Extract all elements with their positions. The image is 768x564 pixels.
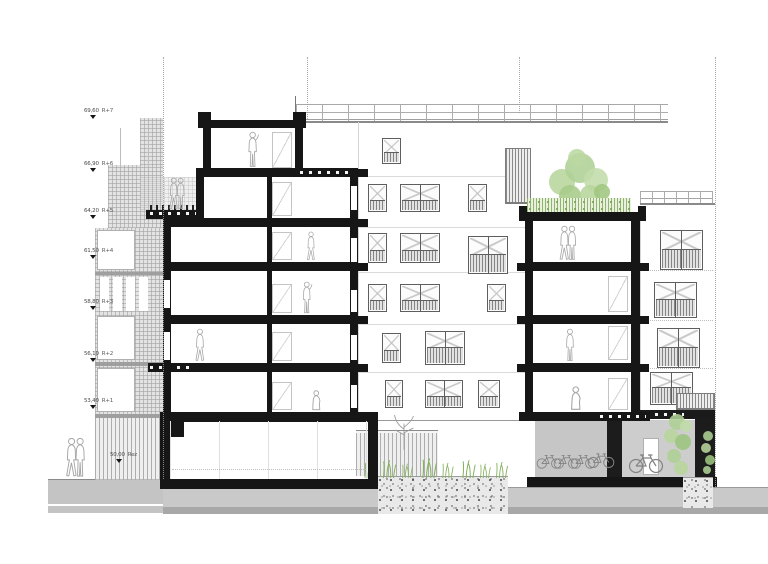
floor-slab [533,315,631,324]
level-triangle-icon [90,215,96,219]
level-floor: R+2 [102,351,113,357]
window-double [660,230,703,270]
grass-tuft [494,460,509,478]
floor-line [358,324,525,325]
ground-edge-line-right [508,487,768,488]
bare-tree [388,412,420,450]
left-building-loggia-slot [126,277,135,311]
floor-dotted-line [640,368,713,370]
window-guardrail [384,152,399,162]
roof-slab [519,212,646,221]
grass-tuft [478,462,492,478]
level-marker-rez: 50,00Rez [110,452,137,463]
floor-line [358,372,525,373]
left-building-step [140,118,163,165]
left-building-loggia-slot [139,277,148,311]
roof-guardrail [296,104,668,122]
human-figure [192,328,208,363]
balcony-slab-nub [640,263,649,271]
left-building-ground-cladding [95,418,163,479]
cut-wall [163,227,171,412]
ground-band-right [508,487,768,507]
facade-ground-line [358,420,536,421]
floor-slab [163,218,358,227]
floor-line [358,227,525,228]
balcony-slab-nub [517,364,525,372]
window [468,184,487,212]
balcony-slab-nub [356,316,368,324]
window-guardrail [659,347,698,366]
level-floor: R+4 [102,248,113,254]
balcony-slab-nub [517,316,525,324]
floor-dotted-line [640,270,713,272]
window-double [425,380,463,408]
roofline [296,121,668,123]
architectural-section-drawing: 69,60R+7 66,90R+6 64,20R+5 61,50R+4 58,8… [0,0,768,564]
level-triangle-icon [90,168,96,172]
balcony-slab-nub [640,316,649,324]
window-double [400,233,440,263]
level-marker-r1: 53,40R+1 [84,398,113,409]
window [487,284,506,312]
interior-door [272,382,292,410]
interior-door [608,378,628,410]
slab-dash-marks [150,366,194,369]
human-figure-pair [556,225,581,262]
bicycle [587,450,615,469]
window-double [400,284,440,312]
level-marker-r5: 64,20R+5 [84,208,113,219]
cut-wall [525,221,533,420]
parapet-cap [198,112,211,128]
grass-tuft [420,456,438,478]
ground-band-center [163,489,378,507]
wall-opening [164,280,170,308]
level-marker-r4: 61,50R+4 [84,248,113,259]
facade-corner-line [640,207,641,420]
gravel-ground [378,476,508,514]
window [382,333,401,363]
window-double [657,328,700,368]
window [368,284,387,312]
green-roof [527,198,631,212]
floor-dotted-line [640,320,713,322]
level-marker-r3: 58,80R+3 [84,299,113,310]
balcony-slab-nub [356,263,368,271]
window-guardrail [370,200,385,210]
level-triangle-icon [90,115,96,119]
level-elevation: 61,50 [84,248,99,254]
floor-slab [533,262,631,271]
balcony-slab-nub [356,169,368,177]
window-double [654,282,697,318]
roof-post [120,128,121,166]
survey-dotted-line [307,57,308,119]
floor-slab [533,363,631,372]
level-triangle-icon [116,459,122,463]
survey-dotted-line [519,57,520,113]
level-triangle-icon [90,255,96,259]
level-elevation: 53,40 [84,398,99,404]
level-triangle-icon [90,358,96,362]
structural-pier [607,420,622,478]
window [382,138,401,164]
level-floor: R+7 [102,108,113,114]
parapet-cap [293,112,306,128]
ground-joint-line [48,504,163,506]
window-glass [384,335,399,351]
wall-opening [351,290,357,312]
wall-opening [351,186,357,210]
level-elevation: 64,20 [84,208,99,214]
wall-opening [351,335,357,360]
level-triangle-icon [90,306,96,310]
window-guardrail [489,300,504,310]
level-elevation: 66,90 [84,161,99,167]
window-guardrail [470,200,485,210]
facade-corner-line [358,122,359,420]
grass-tuft [380,458,398,478]
window-guardrail [427,396,461,406]
wall-opening [351,385,357,408]
cut-wall [203,128,211,170]
floor-line [358,176,525,177]
slab-dash-marks [600,415,646,418]
human-figure-pair [166,177,189,211]
window-glass [402,235,438,251]
level-elevation: 58,80 [84,299,99,305]
roof-slab-upstand [638,206,646,221]
level-floor: Rez [128,452,137,458]
interior-door [272,332,292,361]
interior-door [608,276,628,312]
window [478,380,500,408]
window-guardrail [470,254,506,272]
window-double [468,236,508,274]
human-figure [304,231,318,262]
left-building-balcony-slab [95,272,163,275]
slab-dash-marks [150,212,200,215]
human-figure-pair [62,437,91,479]
interior-door [272,232,292,260]
level-marker-r2: 56,10R+2 [84,351,113,362]
level-floor: R+6 [102,161,113,167]
window-guardrail [370,250,385,261]
window-guardrail [387,396,401,406]
level-marker-r6: 66,90R+6 [84,161,113,172]
window-guardrail [370,300,385,310]
wall-opening [164,332,170,360]
survey-dotted-line [715,57,716,487]
balcony-slab-nub [640,364,649,372]
human-figure [299,281,314,315]
interior-door [608,326,628,360]
interior-door [272,284,292,313]
balcony-railing [676,393,715,410]
level-elevation: 69,60 [84,108,99,114]
window [368,184,387,212]
level-elevation: 50,00 [110,452,125,458]
roof-slab-upstand [519,206,527,221]
level-floor: R+1 [102,398,113,404]
grass-tuft [440,461,455,478]
basement-floor-slab [160,479,378,489]
window-glass [662,232,701,251]
window [385,380,403,408]
level-floor: R+3 [102,299,113,305]
human-figure [308,390,326,412]
roof-post [148,130,149,166]
window-guardrail [656,299,695,316]
interior-door [272,132,292,168]
window-guardrail [480,396,498,406]
window-double [400,184,440,212]
window-guardrail [384,350,399,361]
cut-wall [295,128,303,170]
level-floor: R+5 [102,208,113,214]
wall-opening [351,238,357,262]
window [368,233,387,263]
window-guardrail [402,200,438,210]
window-guardrail [402,250,438,261]
window-guardrail [427,347,463,363]
slatted-railing-panel [505,148,531,204]
courtyard-tree [662,412,696,478]
level-elevation: 56,10 [84,351,99,357]
floor-slab [163,315,358,324]
human-figure [244,131,261,169]
grass-tuft [460,458,477,478]
left-building-loggia-slot [113,277,122,311]
small-shrub [700,428,716,476]
survey-dotted-line [163,57,164,479]
gravel-pier [683,477,713,508]
level-triangle-icon [90,405,96,409]
roofline [640,203,715,205]
balcony-slab-nub [356,219,368,227]
interior-door [272,182,292,216]
slab-dash-marks [300,171,352,174]
window-glass [659,330,698,349]
level-marker-r7: 69,60R+7 [84,108,113,119]
window-double [425,331,465,365]
cut-wall [631,221,640,420]
window-glass [370,235,385,251]
floor-slab [163,262,358,271]
basement-dotted-line [172,469,366,471]
balcony-slab-nub [356,364,368,372]
window-guardrail [402,300,438,310]
bicycle [628,450,664,474]
window-glass [470,238,506,256]
ground-band-left [48,480,163,513]
human-figure [566,386,588,412]
grass-tuft [400,462,414,478]
penthouse-roof-slab [198,120,306,128]
balcony-slab-nub [517,263,525,271]
window-guardrail [662,249,701,268]
human-figure [562,328,578,363]
